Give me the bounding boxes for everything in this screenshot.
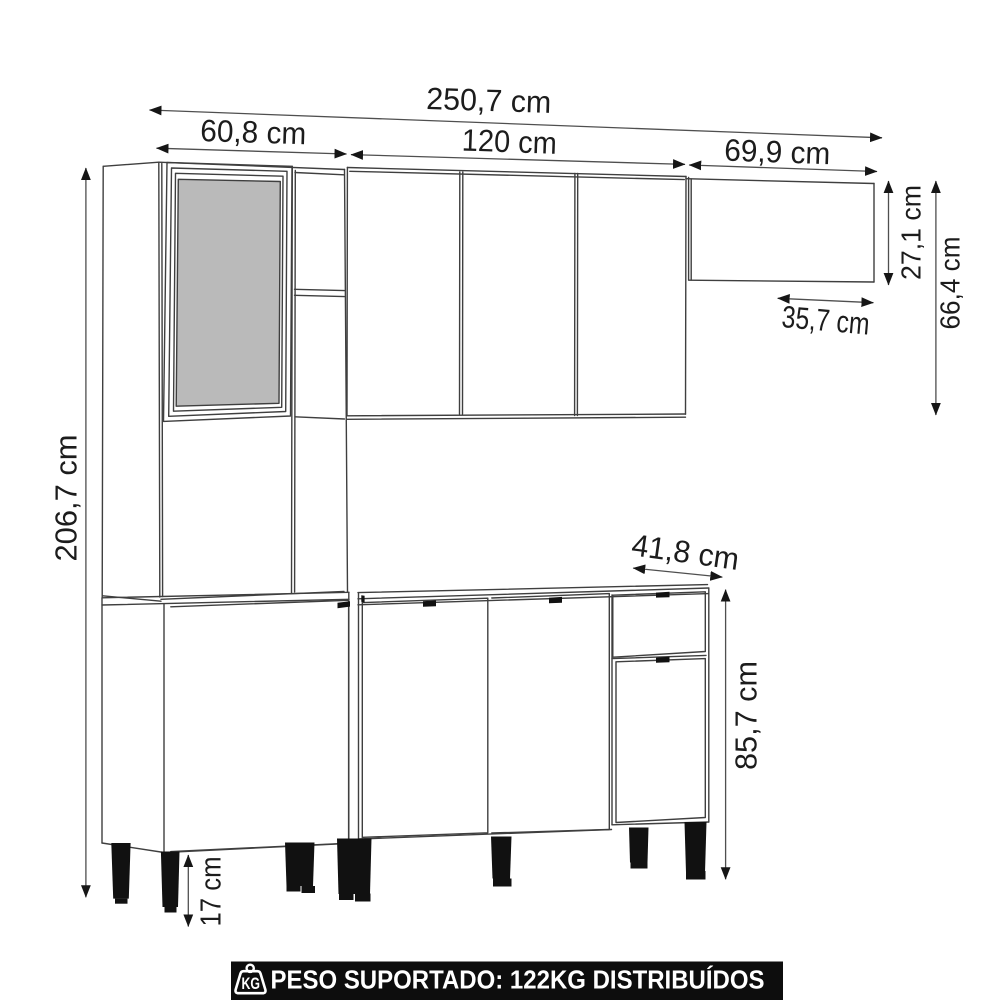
svg-text:85,7 cm: 85,7 cm [729,661,764,770]
svg-text:KG: KG [242,975,261,993]
svg-text:250,7 cm: 250,7 cm [426,81,552,120]
svg-text:PESO SUPORTADO: 122KG DISTRIBU: PESO SUPORTADO: 122KG DISTRIBUÍDOS [271,965,765,995]
svg-text:60,8 cm: 60,8 cm [200,113,307,151]
svg-text:69,9 cm: 69,9 cm [724,133,831,172]
svg-text:66,4 cm: 66,4 cm [935,237,966,330]
svg-text:27,1 cm: 27,1 cm [896,185,927,280]
svg-text:120 cm: 120 cm [461,123,557,161]
svg-text:206,7 cm: 206,7 cm [49,435,84,562]
svg-text:17 cm: 17 cm [196,857,228,927]
